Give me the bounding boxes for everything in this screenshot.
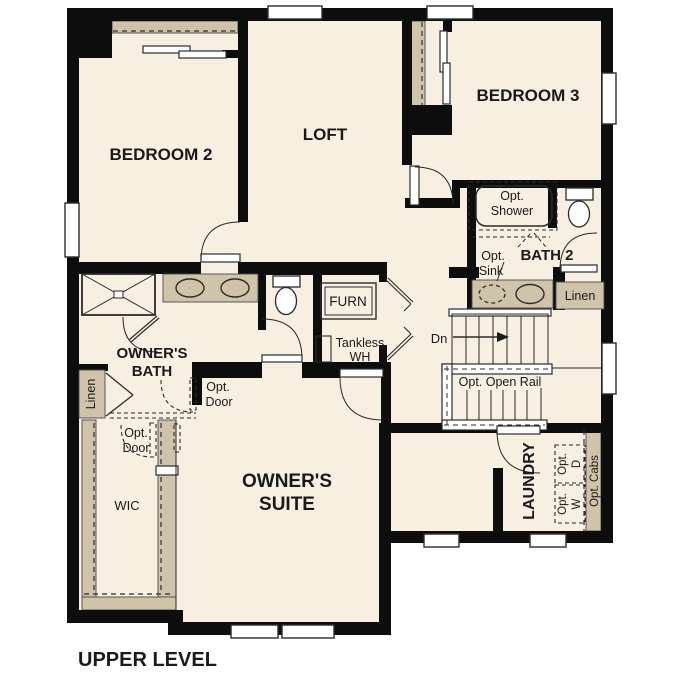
label-opt-door-wic: Opt. <box>124 426 148 440</box>
label-opt-dryer: Opt. <box>557 453 569 475</box>
label-opt-shower: Shower <box>491 204 533 218</box>
bedroom2-door <box>201 254 240 262</box>
bedroom3-closet-shelf <box>410 21 425 107</box>
label-opt-sink: Sink <box>479 264 504 278</box>
laundry-window-1 <box>424 534 459 547</box>
label-opt-door-wic: Door <box>122 441 149 455</box>
room-label-laundry: LAUNDRY <box>521 442 538 520</box>
label-opt-dryer: D <box>571 460 583 468</box>
floor-plan: BEDROOM 2 LOFT BEDROOM 3 Opt. Shower BAT… <box>0 0 687 687</box>
bedroom2-closet-shelf <box>112 21 238 33</box>
room-label-bedroom2: BEDROOM 2 <box>110 145 213 164</box>
label-opt-cabs: Opt. Cabs <box>589 455 601 507</box>
laundry-window-2 <box>530 534 566 547</box>
label-opt-door-hall: Door <box>205 395 232 409</box>
stair-top-edge <box>449 309 551 316</box>
label-tankless: WH <box>350 350 371 364</box>
toilet-tank <box>566 188 593 200</box>
label-tankless: Tankless <box>336 336 385 350</box>
label-furnace: FURN <box>329 294 367 309</box>
room-label-bedroom3: BEDROOM 3 <box>477 86 580 105</box>
bedroom3-door <box>410 166 419 205</box>
toilet-bowl <box>569 201 590 227</box>
room-label-owners-suite: SUITE <box>259 494 315 515</box>
toilet-tank <box>273 276 300 287</box>
bedroom2-closet-door <box>179 51 226 58</box>
label-stairs-down: Dn <box>431 331 448 346</box>
label-opt-washer: W <box>571 498 583 509</box>
label-linen-owners: Linen <box>84 379 98 410</box>
label-opt-sink: Opt. <box>481 249 505 263</box>
label-linen-bath2: Linen <box>565 289 596 303</box>
hall-top-window <box>427 6 473 19</box>
landing-window <box>602 343 616 394</box>
water-closet-door <box>262 355 302 362</box>
suite-window-1 <box>231 625 278 638</box>
page-title: UPPER LEVEL <box>78 649 217 671</box>
shower-drain <box>114 291 123 298</box>
owners-suite-door <box>340 369 383 377</box>
label-opt-shower: Opt. <box>500 189 524 203</box>
bath2-door <box>561 265 597 272</box>
room-label-loft: LOFT <box>303 125 348 144</box>
owners-vanity-counter <box>163 274 258 302</box>
room-label-owners-bath: OWNER'S <box>116 345 187 362</box>
room-label-bath2: BATH 2 <box>520 247 573 264</box>
room-label-wic: WIC <box>114 498 139 513</box>
bedroom3-closet-door <box>443 63 450 104</box>
room-label-owners-suite: OWNER'S <box>242 471 332 492</box>
suite-window-2 <box>282 625 334 638</box>
wic-shelf-bottom <box>82 597 176 610</box>
laundry-door <box>497 426 540 434</box>
label-opt-door-hall: Opt. <box>206 380 230 394</box>
wic-opening <box>156 466 178 475</box>
bedroom2-window <box>65 203 79 257</box>
toilet-bowl <box>276 288 297 315</box>
label-opt-washer: Opt. <box>557 493 569 515</box>
loft-window <box>268 6 322 19</box>
label-opt-open-rail: Opt. Open Rail <box>459 375 542 389</box>
bedroom3-window <box>602 73 616 124</box>
room-label-owners-bath: BATH <box>132 363 173 380</box>
bath2-vanity-counter <box>472 280 553 308</box>
floor-plan-page: BEDROOM 2 LOFT BEDROOM 3 Opt. Shower BAT… <box>0 0 687 687</box>
